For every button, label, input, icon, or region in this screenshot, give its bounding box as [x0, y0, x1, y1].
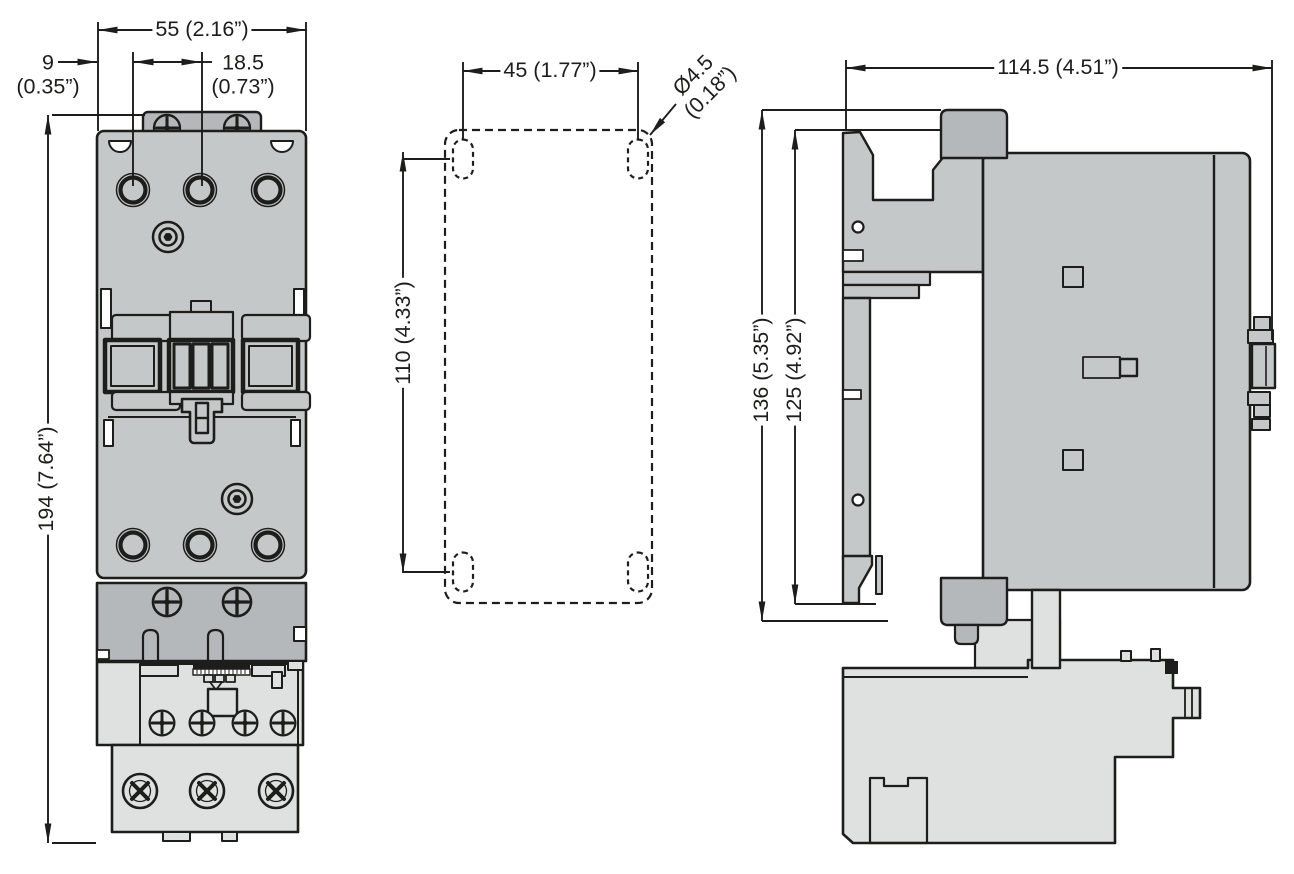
din-bracket-ledge	[843, 285, 919, 298]
body-detail	[1120, 359, 1137, 376]
relay-bar	[288, 661, 303, 670]
mounting-slot-hole	[453, 553, 473, 592]
contact-tab	[242, 315, 310, 341]
terminal-hole	[117, 529, 150, 562]
terminal-hole	[252, 174, 285, 207]
terminal-tab	[1248, 330, 1273, 343]
din-clip-peg	[955, 625, 978, 644]
front-lower-section	[97, 583, 306, 661]
dim-text: 55 (2.16”)	[155, 18, 248, 42]
terminal-hole	[184, 529, 217, 562]
body-detail	[1083, 357, 1120, 378]
body-detail	[1063, 267, 1083, 287]
side-slot	[104, 420, 113, 446]
combo-screw-icon	[259, 774, 293, 808]
dim-text: 114.5 (4.51”)	[997, 56, 1119, 80]
relay-foot	[163, 832, 190, 841]
phillips-screw-icon	[223, 588, 251, 616]
dim-side-depth-label: 114.5 (4.51”)	[994, 56, 1122, 80]
din-clip-top	[941, 110, 1007, 158]
relay-top-tab	[1121, 651, 1131, 661]
mounting-slot-hole	[628, 553, 648, 592]
dim-text: 194 (7.64”)	[35, 426, 59, 531]
relay-adjuster	[208, 689, 237, 716]
relay-corner-block	[1165, 661, 1178, 674]
din-bracket-tab	[876, 556, 882, 594]
terminal-tab	[1252, 344, 1275, 388]
side-slot	[101, 289, 111, 328]
relay-link-bar	[1032, 590, 1060, 668]
din-bracket-ledge	[843, 272, 930, 285]
dim-side-height-overall-label: 136 (5.35”)	[750, 314, 774, 425]
terminal-hole	[252, 529, 285, 562]
plunger-tab	[143, 630, 158, 661]
side-slot	[291, 420, 300, 446]
din-bracket-column	[843, 298, 870, 560]
mounting-hole-pattern	[403, 62, 676, 603]
contactor-dimension-drawing	[0, 0, 1294, 874]
phillips-screw-icon	[153, 588, 181, 616]
plunger-tab	[208, 630, 223, 661]
bracket-slot	[843, 390, 861, 399]
dim-front-pitch-label: 18.5 (0.73”)	[211, 51, 274, 98]
torx-screw-icon	[222, 484, 252, 514]
mounting-slot-hole	[453, 140, 473, 179]
dim-front-height-label: 194 (7.64”)	[35, 423, 59, 534]
relay-foot	[222, 832, 237, 841]
mounting-outline	[445, 130, 652, 603]
dim-text: 136 (5.35”)	[750, 317, 774, 422]
side-view	[762, 60, 1275, 843]
dim-text: 18.5	[211, 51, 274, 75]
overload-relay-side	[843, 660, 1200, 843]
combo-screw-icon	[190, 774, 224, 808]
dim-mount-spacing-h-label: 45 (1.77”)	[500, 59, 599, 83]
mounting-dimensions	[403, 62, 676, 573]
mounting-slot-hole	[628, 140, 648, 179]
bracket-hole	[853, 222, 864, 233]
phillips-screw-icon	[190, 711, 215, 736]
phillips-screw-icon	[271, 711, 296, 736]
edge-notch	[294, 627, 306, 641]
terminal-hole	[184, 174, 217, 207]
relay-tooth	[215, 675, 224, 682]
dim-mount-spacing-v-label: 110 (4.33”)	[392, 278, 416, 388]
dim-text: (0.73”)	[211, 75, 274, 99]
dim-text: (0.35”)	[16, 75, 79, 99]
dim-text: 9	[16, 51, 79, 75]
dim-text: 110 (4.33”)	[392, 281, 416, 385]
bracket-slot	[843, 250, 863, 261]
phillips-screw-icon	[150, 711, 175, 736]
phillips-screw-icon	[233, 711, 258, 736]
contact-window	[105, 340, 160, 392]
din-bracket-foot	[843, 556, 872, 603]
relay-top-tab	[1151, 649, 1160, 661]
contact-lid	[170, 312, 233, 340]
dim-text: 45 (1.77”)	[503, 59, 596, 83]
front-view	[48, 22, 310, 843]
relay-tooth	[204, 675, 213, 682]
bracket-hole	[853, 495, 864, 506]
relay-tooth	[226, 675, 235, 682]
edge-notch	[97, 650, 109, 659]
contact-shelf	[242, 392, 310, 410]
dim-front-offset-label: 9 (0.35”)	[16, 51, 79, 98]
dim-text: 125 (4.92”)	[783, 317, 807, 422]
relay-scale	[193, 661, 250, 669]
dim-front-width-label: 55 (2.16”)	[152, 18, 251, 42]
terminal-tab	[1248, 392, 1270, 405]
contact-window	[243, 340, 298, 392]
terminal-tab	[1254, 405, 1270, 417]
dim-side-height-body-label: 125 (4.92”)	[783, 314, 807, 425]
technical-drawing: 55 (2.16”) 9 (0.35”) 18.5 (0.73”) 194 (7…	[0, 0, 1294, 874]
terminal-tab	[1252, 419, 1270, 430]
relay-bar	[140, 665, 178, 676]
combo-screw-icon	[123, 774, 157, 808]
relay-tab	[272, 672, 282, 688]
body-detail	[1063, 450, 1083, 470]
terminal-tab	[1254, 317, 1270, 330]
torx-screw-icon	[153, 222, 183, 252]
contact-window	[169, 340, 233, 392]
din-clip-bottom	[941, 578, 1007, 625]
